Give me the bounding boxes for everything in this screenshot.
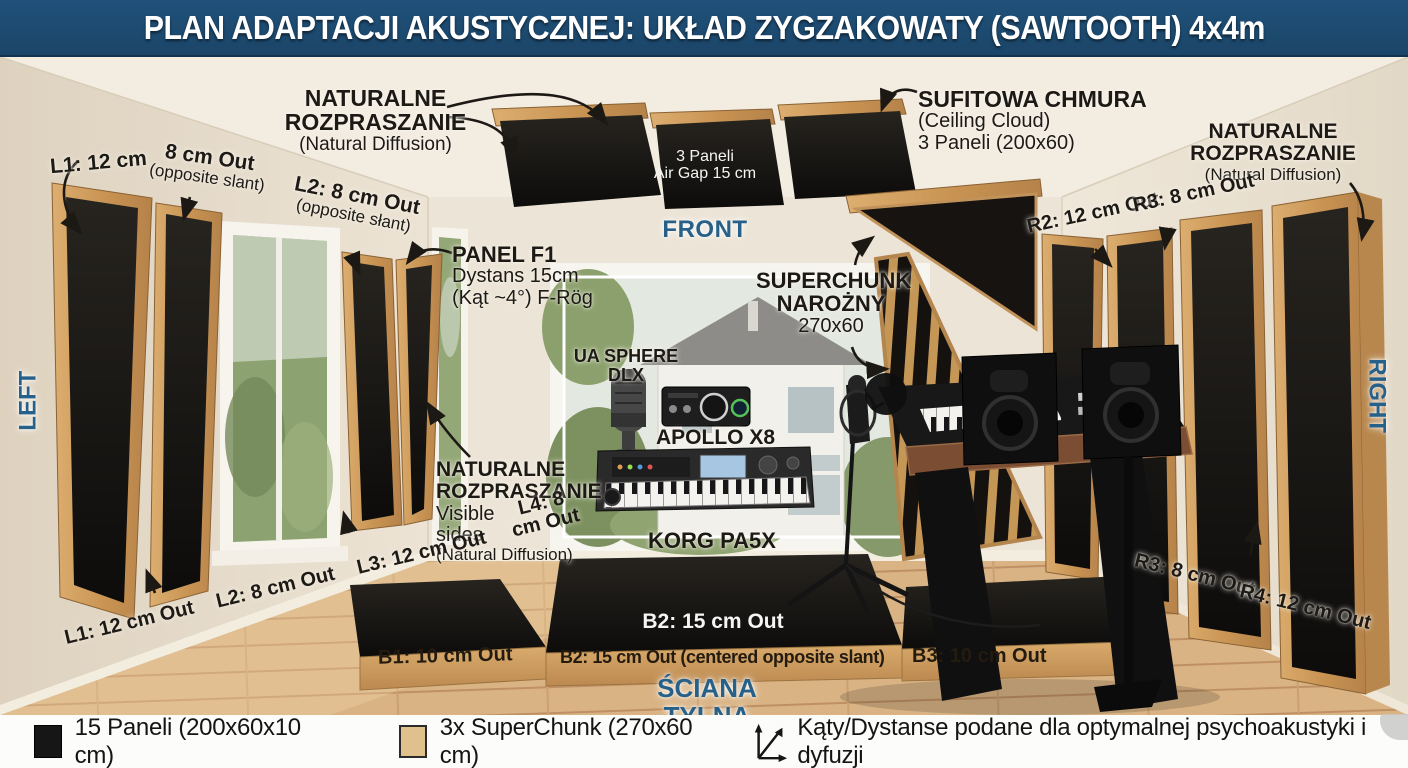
label-ceiling-gap-note: 3 Paneli Air Gap 15 cm (645, 149, 765, 183)
label-front-wall: FRONT (650, 217, 760, 242)
title-bar: PLAN ADAPTACJI AKUSTYCZNEJ: UKŁAD ZYGZAK… (0, 0, 1408, 57)
label-keyboard-name: KORG PA5X (642, 529, 782, 552)
left-window (212, 221, 348, 566)
legend-bar: 15 Paneli (200x60x10 cm) 3x SuperChunk (… (0, 715, 1408, 768)
label-b2-front: B2: 15 cm Out (centered opposite slant) (560, 648, 884, 667)
label-b2-top: B2: 15 cm Out (638, 611, 788, 633)
label-back-wall: ŚCIANA TYLNA (612, 675, 802, 715)
label-b1-front: B1: 10 cm Out (378, 644, 513, 669)
legend-note-label: Kąty/Dystanse podane dla optymalnej psyc… (797, 714, 1408, 768)
label-left-wall: LEFT (15, 356, 40, 446)
label-diffusion-top-right: NATURALNE ROZPRASZANIE (Natural Diffusio… (1188, 121, 1358, 184)
label-superchunk: SUPERCHUNK NAROŻNY 270x60 (756, 269, 906, 337)
angle-arrows-icon (751, 721, 787, 763)
room-render: NATURALNE ROZPRASZANIE (Natural Diffusio… (0, 57, 1408, 715)
legend-panels: 15 Paneli (200x60x10 cm) (34, 714, 333, 768)
label-panel-f1: PANEL F1 Dystans 15cm (Kąt ~4°) F-Rög (452, 243, 593, 309)
acoustic-plan-infographic: PLAN ADAPTACJI AKUSTYCZNEJ: UKŁAD ZYGZAK… (0, 0, 1408, 768)
label-diffusion-top-left: NATURALNE ROZPRASZANIE (Natural Diffusio… (278, 86, 473, 155)
label-ceiling-cloud: SUFITOWA CHMURA (Ceiling Cloud) 3 Paneli… (918, 87, 1147, 154)
legend-superchunk: 3x SuperChunk (270x60 cm) (399, 714, 723, 768)
label-b3-front: B3: 10 cm Out (912, 646, 1046, 667)
legend-superchunk-label: 3x SuperChunk (270x60 cm) (440, 714, 723, 768)
label-right-wall: RIGHT (1364, 351, 1389, 441)
label-interface-name: APOLLO X8 (648, 427, 783, 449)
label-mic-name: UA SPHERE DLX (556, 347, 696, 385)
page-title: PLAN ADAPTACJI AKUSTYCZNEJ: UKŁAD ZYGZAK… (143, 9, 1264, 47)
audio-interface-icon (662, 387, 750, 426)
panel-swatch (34, 725, 62, 758)
superchunk-swatch (399, 725, 427, 758)
legend-panels-label: 15 Paneli (200x60x10 cm) (75, 714, 333, 768)
keyboard-icon (596, 447, 814, 511)
legend-note: Kąty/Dystanse podane dla optymalnej psyc… (751, 714, 1408, 768)
